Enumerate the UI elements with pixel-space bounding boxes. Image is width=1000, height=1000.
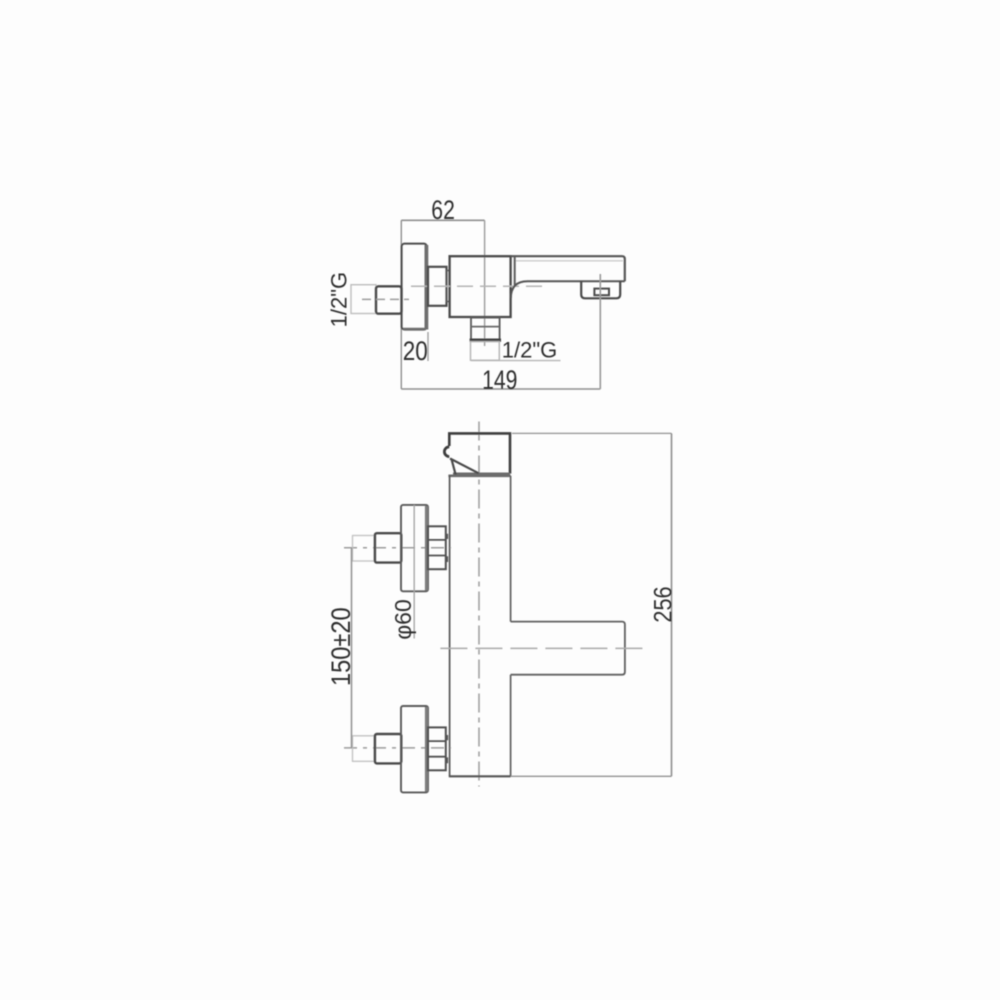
svg-text:1/2"G: 1/2"G [502, 337, 558, 362]
svg-text:φ60: φ60 [390, 599, 416, 640]
svg-text:1/2"G: 1/2"G [327, 272, 352, 328]
svg-text:256: 256 [649, 586, 677, 622]
svg-text:62: 62 [431, 196, 455, 226]
svg-text:20: 20 [403, 337, 428, 366]
svg-text:149: 149 [482, 366, 517, 396]
svg-text:150±20: 150±20 [326, 607, 356, 686]
